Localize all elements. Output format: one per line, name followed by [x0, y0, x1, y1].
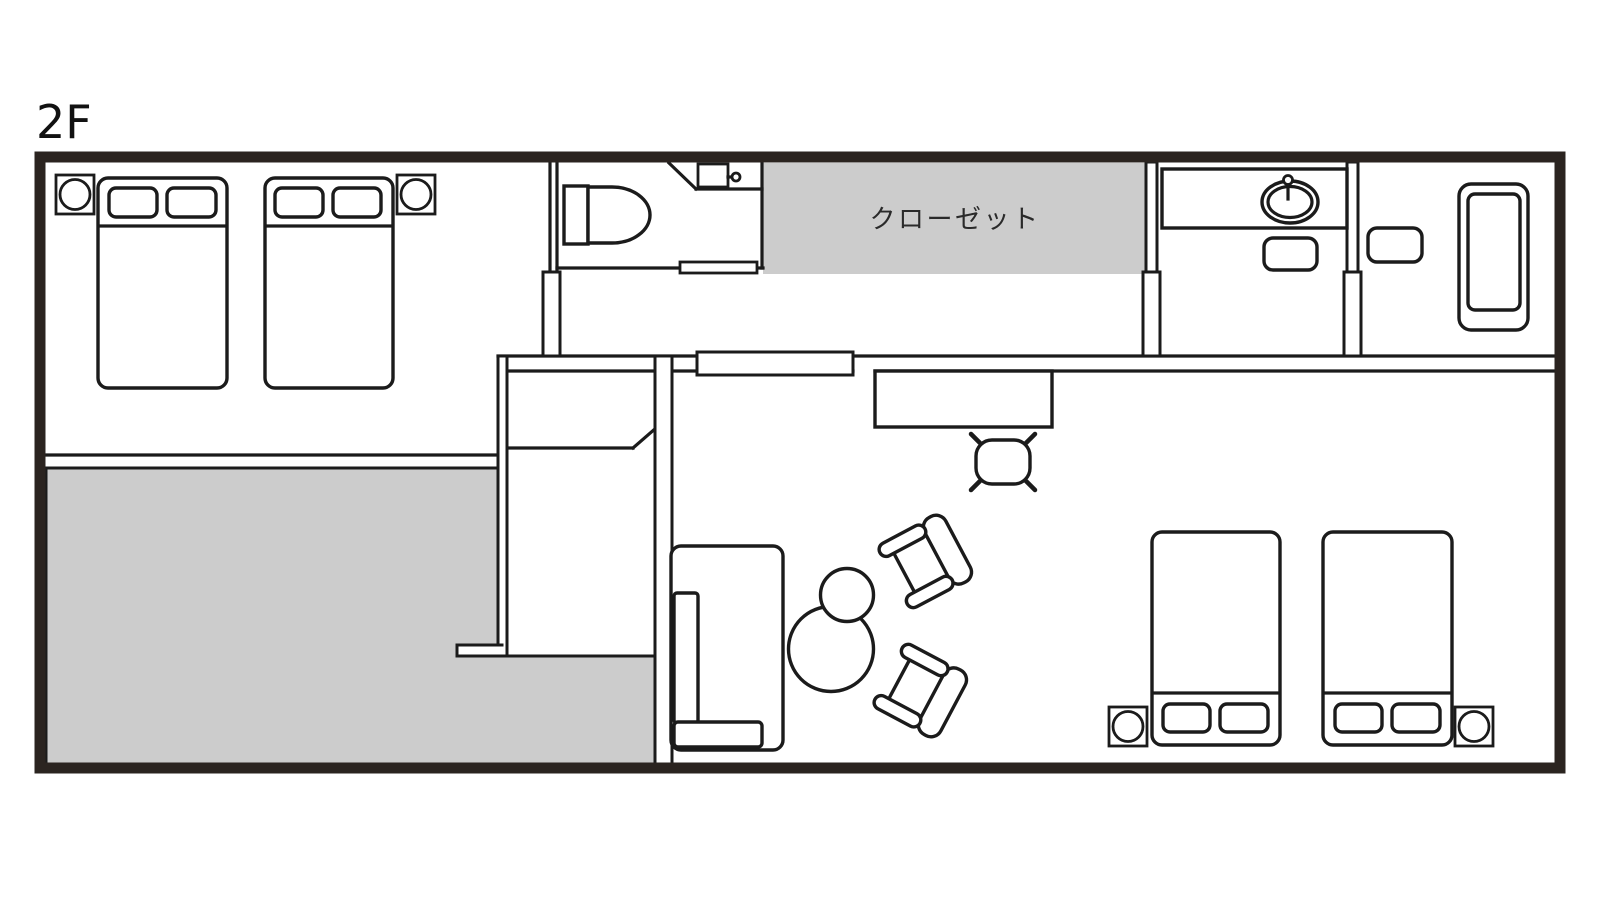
gray-room-area — [46, 468, 657, 769]
door-jamb-washroom-left — [1143, 272, 1160, 356]
bath-stool-icon — [1368, 228, 1422, 262]
nightstand-2-lamp-icon — [401, 180, 431, 210]
sofa-icon — [671, 546, 783, 750]
bed-2-icon — [265, 178, 393, 388]
door-jamb-toilet — [543, 272, 560, 356]
bed-4-icon — [1323, 532, 1452, 745]
bed-1-icon — [98, 178, 227, 388]
armchair-2-icon — [871, 641, 970, 741]
living-room — [671, 371, 1052, 750]
toilet-bowl-icon — [588, 187, 650, 243]
floor-cushion-icon — [971, 434, 1035, 490]
vanity-stool-icon — [1264, 238, 1317, 270]
round-table-small-icon — [821, 569, 874, 622]
door-threshold-toilet — [680, 262, 757, 273]
bed-3-icon — [1152, 532, 1280, 745]
floor-plan-page: 2F クローゼット — [0, 0, 1600, 900]
wall-joint-eraser — [500, 647, 506, 655]
floor-plan-2f: 2F クローゼット — [0, 0, 1600, 900]
wall-corridor-vertical — [498, 356, 507, 655]
hand-sink-icon — [698, 164, 728, 187]
wall-toilet-niche-diagonal — [669, 163, 696, 189]
bedroom-top-left — [56, 175, 435, 388]
hand-sink-knob-icon — [732, 173, 740, 181]
wall-stair-diagonal — [633, 428, 656, 448]
toilet-room — [564, 164, 740, 244]
wall-corridor-foot — [457, 645, 502, 656]
wall-closet-right — [1146, 162, 1157, 275]
desk — [875, 371, 1052, 427]
nightstand-4-lamp-icon — [1459, 712, 1489, 742]
door-jamb-washroom-mid — [1344, 272, 1361, 356]
closet-label: クローゼット — [869, 205, 1040, 235]
nightstand-3-lamp-icon — [1113, 712, 1143, 742]
sliding-door-leaf — [697, 352, 853, 375]
nightstand-1-lamp-icon — [60, 180, 90, 210]
bathtub-inner — [1468, 194, 1520, 310]
floor-label: 2F — [36, 95, 92, 149]
faucet-icon — [1284, 176, 1293, 185]
toilet-tank-icon — [564, 186, 588, 244]
armchair-1-icon — [876, 511, 975, 611]
bedroom-bottom-right — [1109, 532, 1493, 746]
